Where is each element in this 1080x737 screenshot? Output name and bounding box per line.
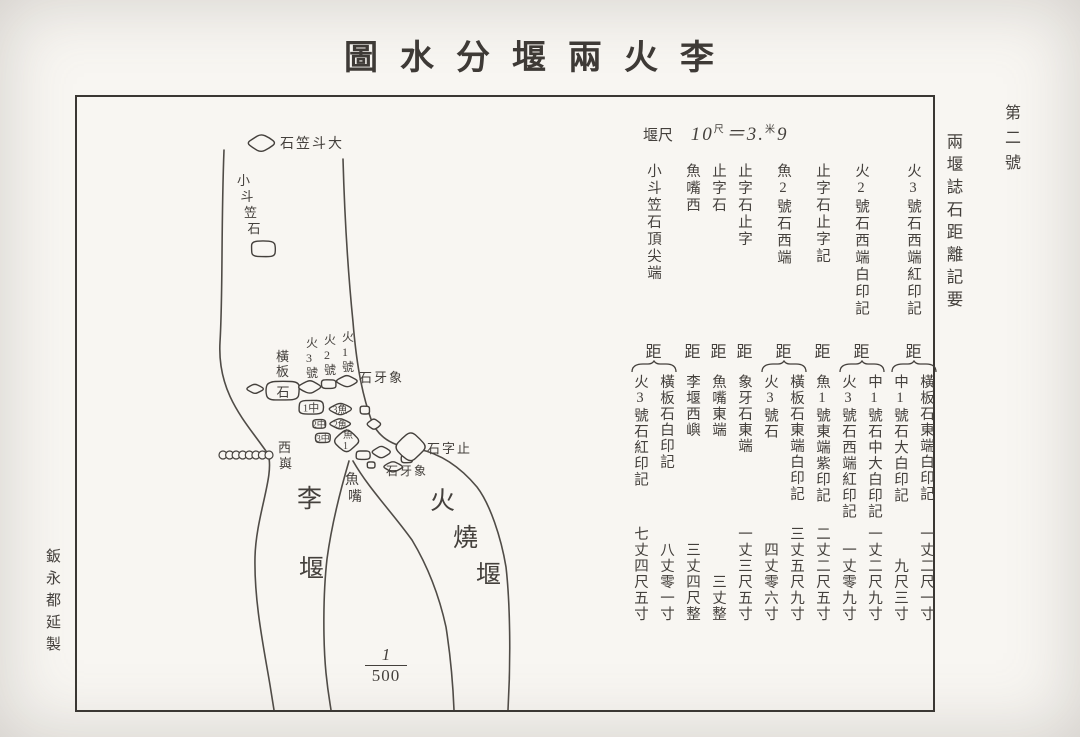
record-items: 橫板石東端白印記三丈五尺九寸火3號石四丈零六寸 xyxy=(760,374,807,622)
distance-record: 魚2號石西端距 橫板石東端白印記三丈五尺九寸火3號石四丈零六寸 xyxy=(760,163,807,637)
distance-item-target: 魚嘴東端 xyxy=(708,374,729,438)
label-hengban-shi: 橫 xyxy=(276,349,289,364)
distance-item-value: 三丈四尺整 xyxy=(682,542,703,622)
brace-icon xyxy=(761,360,807,373)
record-distance-char: 距 xyxy=(645,338,661,360)
distance-item-target: 李堰西嶼 xyxy=(682,374,703,438)
distance-item: 橫板石白印記八丈零一寸 xyxy=(656,374,677,622)
distance-record: 火2號石西端白印記距 中1號石中大白印記一丈二尺九寸火3號石西端紅印記一丈零九寸 xyxy=(838,163,885,637)
distance-records: 火3號石西端紅印記距 橫板石東端白印記一丈二尺一寸中1號石大白印記九尺三寸火2號… xyxy=(625,163,937,637)
rock-hengban-west xyxy=(247,384,263,393)
label-xi-yu: 西 xyxy=(278,440,291,455)
label-xiao-douli-shi: 笠 xyxy=(244,205,257,220)
record-brace xyxy=(891,360,937,373)
label-huo-1-hao: 號 xyxy=(342,360,354,374)
distance-item-target: 象牙石東端 xyxy=(734,374,755,454)
weir-ruler-scale-note: 堰尺 10尺＝3.米9 xyxy=(643,119,789,146)
distance-item: 中1號石大白印記九尺三寸 xyxy=(890,374,911,622)
rock-zhizi xyxy=(396,433,425,461)
rock-yu2-label: 2魚 xyxy=(333,419,347,430)
label-huo-1-hao: 1 xyxy=(342,345,348,359)
scale-note-label: 堰尺 xyxy=(643,128,673,144)
distance-item: 火3號石紅印記七丈四尺五寸 xyxy=(630,374,651,622)
distance-record: 魚嘴西距李堰西嶼三丈四尺整 xyxy=(682,163,703,637)
label-huo-3-hao: 號 xyxy=(306,366,318,380)
distance-record: 火3號石西端紅印記距 橫板石東端白印記一丈二尺一寸中1號石大白印記九尺三寸 xyxy=(890,163,937,637)
distance-item-target: 中1號石中大白印記 xyxy=(864,374,885,520)
record-stone-name: 止字石止字記 xyxy=(812,163,833,335)
rock-xiao-douli xyxy=(252,241,276,257)
distance-record: 小斗笠石頂尖端距 橫板石白印記八丈零一寸火3號石紅印記七丈四尺五寸 xyxy=(630,163,677,637)
label-huoshao-yan: 火 xyxy=(430,488,455,515)
river-bank-right-upper xyxy=(343,159,510,710)
label-huo-2-hao: 火 xyxy=(324,333,336,347)
rock-huo1 xyxy=(337,376,358,387)
brace-icon xyxy=(631,360,677,373)
distance-item-target: 魚1號東端紫印記 xyxy=(812,374,833,504)
sheet-number: 第二號 xyxy=(998,104,1022,179)
record-stone-name: 魚嘴西 xyxy=(682,163,703,335)
distance-item-target: 中1號石大白印記 xyxy=(890,374,911,504)
marker-stones: 石1中3魚2中2魚3中魚1 xyxy=(247,135,425,472)
left-margin-credit: 鈑永都延製 xyxy=(42,548,63,658)
distance-record: 止字石止字記距魚1號東端紫印記二丈二尺五寸 xyxy=(812,163,833,637)
distance-item-target: 橫板石東端白印記 xyxy=(786,374,807,502)
rock-yu3-label: 3魚 xyxy=(333,403,348,416)
distance-item-target: 火3號石西端紅印記 xyxy=(838,374,859,520)
distance-item-target: 火3號石紅印記 xyxy=(630,374,651,488)
record-items: 橫板石東端白印記一丈二尺一寸中1號石大白印記九尺三寸 xyxy=(890,374,937,622)
rock-zhong3-label: 3中 xyxy=(316,433,330,444)
label-li-yan: 李 xyxy=(297,485,322,513)
scale-note-formula: 10尺＝3.米9 xyxy=(691,124,789,145)
rock-huo2 xyxy=(321,380,335,389)
label-hengban-shi: 板 xyxy=(276,364,289,379)
map-labels: 石笠斗大小斗笠石橫板火3號火2號火1號石牙象西㠘石字止石牙象魚嘴李堰火燒堰 xyxy=(237,136,501,589)
record-stone-name: 魚2號石西端 xyxy=(773,163,794,335)
rock-fm-b xyxy=(372,446,390,457)
distance-item-value: 二丈二尺五寸 xyxy=(812,526,833,622)
distance-item: 橫板石東端白印記三丈五尺九寸 xyxy=(786,374,807,622)
record-stone-name: 火2號石西端白印記 xyxy=(851,163,872,335)
rock-da-douli xyxy=(248,135,274,151)
record-items: 魚1號東端紫印記二丈二尺五寸 xyxy=(812,374,833,622)
record-distance-char: 距 xyxy=(684,338,700,360)
record-stone-name: 火3號石西端紅印記 xyxy=(903,163,924,335)
record-distance-char: 距 xyxy=(905,338,921,360)
rock-fm-c xyxy=(367,462,375,468)
rock-zhong1-label: 1中 xyxy=(303,402,320,415)
record-items: 中1號石中大白印記一丈二尺九寸火3號石西端紅印記一丈零九寸 xyxy=(838,374,885,622)
record-items: 李堰西嶼三丈四尺整 xyxy=(682,374,703,622)
distance-record: 止字石距魚嘴東端三丈整 xyxy=(708,163,729,637)
page-title: 圖水分堰兩火李 xyxy=(0,30,1080,79)
record-stone-name: 小斗笠石頂尖端 xyxy=(643,163,664,335)
record-items: 象牙石東端一丈三尺五寸 xyxy=(734,374,755,622)
scale-fraction-numerator: 1 xyxy=(382,645,391,664)
right-margin-title: 兩堰誌石距離記要 xyxy=(941,133,965,313)
rock-small-a xyxy=(360,406,369,414)
record-distance-char: 距 xyxy=(736,338,752,360)
label-da-douli-shi: 石笠斗大 xyxy=(280,136,344,152)
map-scale-fraction: 1 500 xyxy=(359,646,413,685)
river-banks xyxy=(220,150,510,710)
label-xiao-douli-shi: 石 xyxy=(248,221,261,236)
distance-item-value: 三丈五尺九寸 xyxy=(786,526,807,622)
record-brace xyxy=(631,360,677,373)
record-brace xyxy=(761,360,807,373)
map-border-frame: 石1中3魚2中2魚3中魚1 石笠斗大小斗笠石橫板火3號火2號火1號石牙象西㠘石字… xyxy=(75,95,935,712)
distance-item-value: 一丈二尺九寸 xyxy=(864,526,885,622)
rock-huo3 xyxy=(299,381,321,393)
record-stone-name: 止字石止字 xyxy=(734,163,755,335)
record-distance-char: 距 xyxy=(853,338,869,360)
islet-circle xyxy=(265,451,273,459)
label-huo-1-hao: 火 xyxy=(342,330,354,344)
distance-item-target: 橫板石東端白印記 xyxy=(916,374,937,502)
label-huoshao-yan: 堰 xyxy=(476,561,501,589)
distance-item: 魚1號東端紫印記二丈二尺五寸 xyxy=(812,374,833,622)
label-huo-3-hao: 火 xyxy=(306,336,318,350)
distance-item: 魚嘴東端三丈整 xyxy=(708,374,729,622)
label-xiao-douli-shi: 斗 xyxy=(241,189,254,204)
brace-icon xyxy=(839,360,885,373)
label-huo-2-hao: 號 xyxy=(324,363,336,377)
label-xiangya-shi-upper: 石牙象 xyxy=(359,370,404,385)
west-islet-chain xyxy=(219,451,273,459)
label-huo-2-hao: 2 xyxy=(324,348,330,362)
rock-hengban-label: 石 xyxy=(276,385,289,400)
li-weir-right-bank xyxy=(324,461,349,710)
record-distance-char: 距 xyxy=(775,338,791,360)
label-yu-zui: 嘴 xyxy=(348,489,362,505)
scale-fraction-denominator: 500 xyxy=(372,666,401,685)
distance-item-value: 一丈零九寸 xyxy=(838,542,859,622)
distance-item-target: 火3號石 xyxy=(760,374,781,440)
distance-item-target: 橫板石白印記 xyxy=(656,374,677,470)
scanned-map-page: 圖水分堰兩火李 第二號 兩堰誌石距離記要 鈑永都延製 石1中3魚2中2魚3中魚1… xyxy=(0,0,1080,737)
label-zhizi-shi: 石字止 xyxy=(427,441,472,456)
label-xi-yu: 㠘 xyxy=(279,456,292,471)
label-yu-zui: 魚 xyxy=(345,472,359,488)
distance-item-value: 八丈零一寸 xyxy=(656,542,677,622)
distance-item: 中1號石中大白印記一丈二尺九寸 xyxy=(864,374,885,622)
distance-item: 李堰西嶼三丈四尺整 xyxy=(682,374,703,622)
label-xiao-douli-shi: 小 xyxy=(237,173,250,188)
rock-zhong2-label: 2中 xyxy=(312,419,326,430)
brace-icon xyxy=(891,360,937,373)
distance-item: 火3號石四丈零六寸 xyxy=(760,374,781,622)
record-items: 橫板石白印記八丈零一寸火3號石紅印記七丈四尺五寸 xyxy=(630,374,677,622)
distance-item: 橫板石東端白印記一丈二尺一寸 xyxy=(916,374,937,622)
distance-item: 象牙石東端一丈三尺五寸 xyxy=(734,374,755,622)
record-distance-char: 距 xyxy=(710,338,726,360)
distance-item: 火3號石西端紅印記一丈零九寸 xyxy=(838,374,859,622)
distance-item-value: 四丈零六寸 xyxy=(760,542,781,622)
record-items: 魚嘴東端三丈整 xyxy=(708,374,729,622)
distance-item-value: 九尺三寸 xyxy=(890,558,911,622)
rock-fm-a xyxy=(356,451,370,460)
rock-yu1-label: 魚 xyxy=(343,428,353,441)
distance-record: 止字石止字距象牙石東端一丈三尺五寸 xyxy=(734,163,755,637)
label-huoshao-yan: 燒 xyxy=(453,524,478,552)
record-brace xyxy=(839,360,885,373)
distance-item-value: 七丈四尺五寸 xyxy=(630,526,651,622)
record-distance-char: 距 xyxy=(814,338,830,360)
rock-small-b xyxy=(367,419,380,429)
record-stone-name: 止字石 xyxy=(708,163,729,335)
distance-item-value: 一丈三尺五寸 xyxy=(734,526,755,622)
label-li-yan: 堰 xyxy=(299,555,324,583)
label-huo-3-hao: 3 xyxy=(306,351,312,365)
distance-item-value: 一丈二尺一寸 xyxy=(916,526,937,622)
label-xiangya-shi-lower: 石牙象 xyxy=(386,464,428,478)
distance-item-value: 三丈整 xyxy=(708,574,729,622)
rock-yu1-label: 1 xyxy=(343,441,348,452)
